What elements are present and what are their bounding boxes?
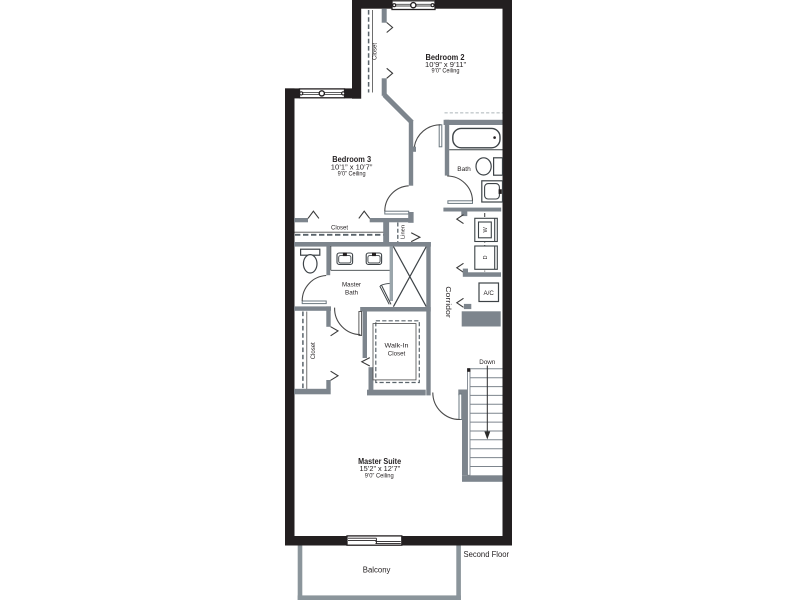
svg-text:Closet: Closet — [331, 225, 348, 232]
svg-text:Linen: Linen — [401, 225, 407, 239]
svg-text:Closet: Closet — [388, 351, 406, 358]
svg-text:Master: Master — [342, 282, 362, 289]
svg-text:10’9” x 9’11”: 10’9” x 9’11” — [425, 60, 467, 69]
svg-text:9’0” Ceiling: 9’0” Ceiling — [338, 171, 366, 177]
svg-text:Second Floor: Second Floor — [464, 549, 510, 559]
svg-text:Corridor: Corridor — [444, 286, 451, 318]
svg-text:Bath: Bath — [345, 290, 358, 297]
svg-text:Walk-In: Walk-In — [385, 343, 409, 350]
svg-text:W: W — [483, 226, 489, 232]
svg-text:Balcony: Balcony — [363, 566, 391, 575]
svg-text:A/C: A/C — [484, 290, 495, 297]
svg-text:Down: Down — [479, 359, 495, 366]
svg-text:Closet: Closet — [310, 342, 317, 359]
svg-text:9’0” Ceiling: 9’0” Ceiling — [432, 69, 460, 75]
svg-text:Bath: Bath — [457, 166, 471, 173]
svg-text:9’0” Ceiling: 9’0” Ceiling — [365, 473, 394, 479]
svg-text:10’1” x 10’7”: 10’1” x 10’7” — [331, 162, 373, 171]
svg-text:D: D — [483, 255, 489, 259]
svg-text:Closet: Closet — [372, 43, 379, 60]
svg-text:15’2” x 12’7”: 15’2” x 12’7” — [360, 464, 401, 473]
